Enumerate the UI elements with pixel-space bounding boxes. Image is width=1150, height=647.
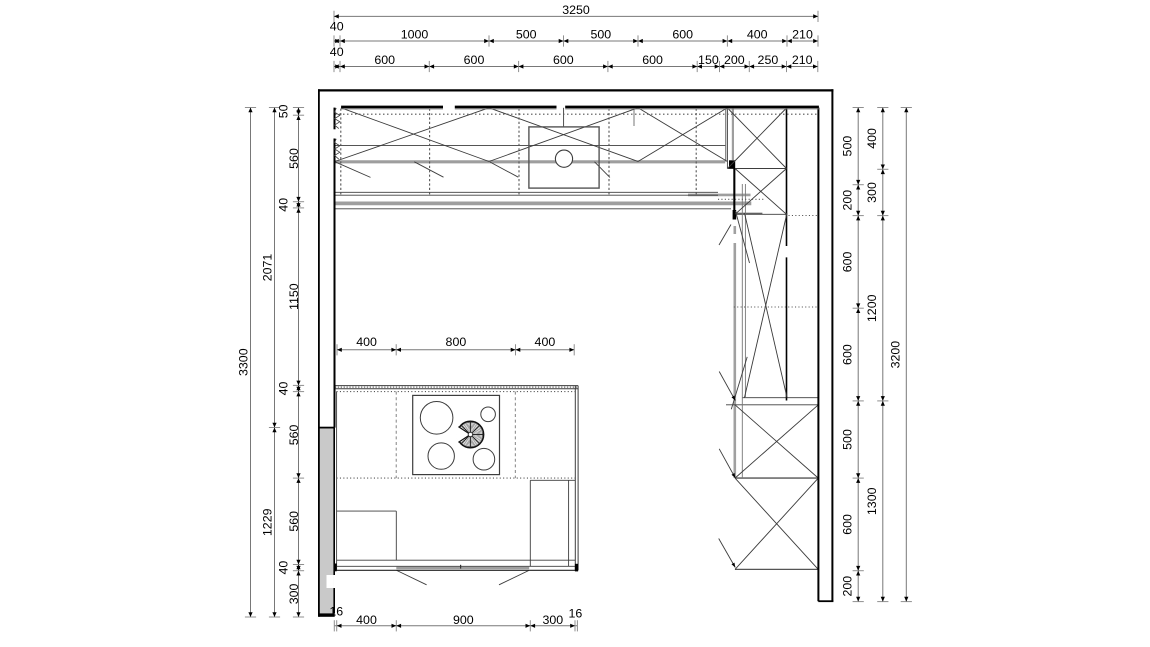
svg-text:600: 600	[642, 53, 663, 67]
svg-text:50: 50	[277, 104, 291, 118]
svg-text:200: 200	[724, 53, 745, 67]
svg-text:1200: 1200	[865, 294, 879, 322]
svg-text:400: 400	[865, 128, 879, 149]
svg-text:500: 500	[841, 429, 855, 450]
svg-text:250: 250	[758, 53, 779, 67]
svg-text:1000: 1000	[401, 28, 429, 42]
svg-text:600: 600	[841, 514, 855, 535]
svg-text:300: 300	[542, 613, 563, 627]
svg-text:600: 600	[553, 53, 574, 67]
svg-text:500: 500	[590, 28, 611, 42]
svg-text:600: 600	[464, 53, 485, 67]
svg-text:40: 40	[330, 45, 344, 59]
svg-text:40: 40	[277, 198, 291, 212]
svg-text:300: 300	[865, 182, 879, 203]
svg-text:400: 400	[356, 613, 377, 627]
svg-text:900: 900	[453, 613, 474, 627]
svg-text:200: 200	[841, 190, 855, 211]
svg-text:400: 400	[356, 335, 377, 349]
svg-text:3250: 3250	[562, 3, 590, 17]
svg-text:600: 600	[672, 28, 693, 42]
svg-text:200: 200	[841, 576, 855, 597]
svg-text:3300: 3300	[236, 348, 250, 376]
svg-text:1229: 1229	[261, 508, 275, 536]
svg-text:600: 600	[841, 344, 855, 365]
svg-text:40: 40	[277, 382, 291, 396]
svg-text:210: 210	[792, 53, 813, 67]
svg-text:560: 560	[287, 424, 301, 445]
svg-text:1300: 1300	[865, 487, 879, 515]
svg-text:560: 560	[287, 148, 301, 169]
svg-text:500: 500	[516, 28, 537, 42]
svg-text:800: 800	[446, 335, 467, 349]
svg-text:600: 600	[841, 251, 855, 272]
svg-text:150: 150	[698, 53, 719, 67]
svg-text:560: 560	[287, 511, 301, 532]
svg-text:600: 600	[374, 53, 395, 67]
svg-text:210: 210	[792, 28, 813, 42]
svg-text:500: 500	[841, 136, 855, 157]
svg-text:1150: 1150	[287, 283, 301, 310]
svg-text:40: 40	[277, 561, 291, 575]
svg-text:400: 400	[535, 335, 556, 349]
svg-text:3200: 3200	[889, 341, 903, 369]
svg-text:16: 16	[569, 607, 583, 621]
svg-text:300: 300	[287, 583, 301, 604]
svg-text:2071: 2071	[261, 254, 275, 282]
svg-text:16: 16	[329, 605, 343, 619]
svg-text:40: 40	[330, 19, 344, 33]
svg-text:400: 400	[747, 28, 768, 42]
